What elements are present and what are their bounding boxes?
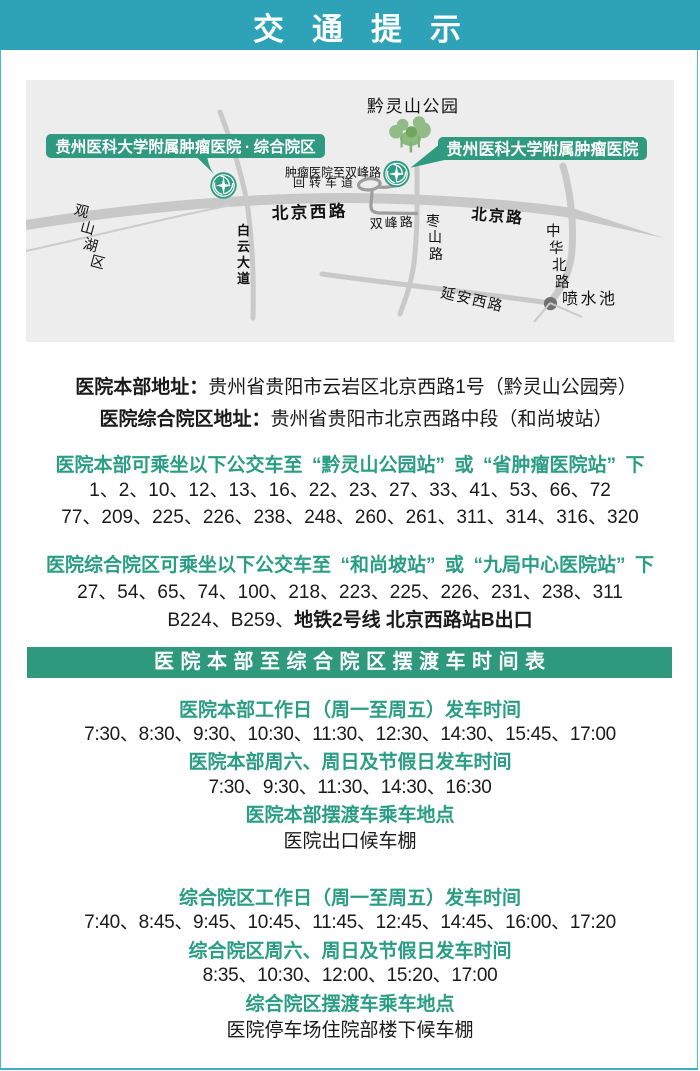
svg-text:云: 云	[237, 239, 250, 254]
svg-text:区: 区	[88, 253, 106, 272]
svg-text:贵州医科大学附属肿瘤医院·综合院区: 贵州医科大学附属肿瘤医院·综合院区	[55, 137, 316, 156]
svg-text:湖: 湖	[81, 235, 99, 255]
svg-text:路: 路	[429, 247, 443, 263]
svg-text:双峰路: 双峰路	[369, 214, 415, 231]
svg-text:黔灵山公园: 黔灵山公园	[367, 97, 460, 116]
svg-text:中: 中	[546, 223, 561, 240]
svg-text:道: 道	[237, 271, 250, 286]
svg-text:大: 大	[237, 255, 250, 270]
svg-text:北: 北	[552, 257, 567, 274]
svg-text:回转车道: 回转车道	[293, 175, 357, 190]
svg-text:延安西路: 延安西路	[439, 284, 505, 315]
svg-text:北京西路: 北京西路	[271, 200, 348, 223]
svg-text:白: 白	[237, 223, 250, 238]
svg-text:山: 山	[428, 230, 442, 246]
svg-text:枣: 枣	[426, 214, 440, 230]
svg-text:喷水池: 喷水池	[562, 290, 618, 308]
svg-text:贵州医科大学附属肿瘤医院: 贵州医科大学附属肿瘤医院	[446, 140, 638, 159]
svg-text:华: 华	[549, 240, 564, 257]
svg-text:路: 路	[555, 274, 570, 291]
